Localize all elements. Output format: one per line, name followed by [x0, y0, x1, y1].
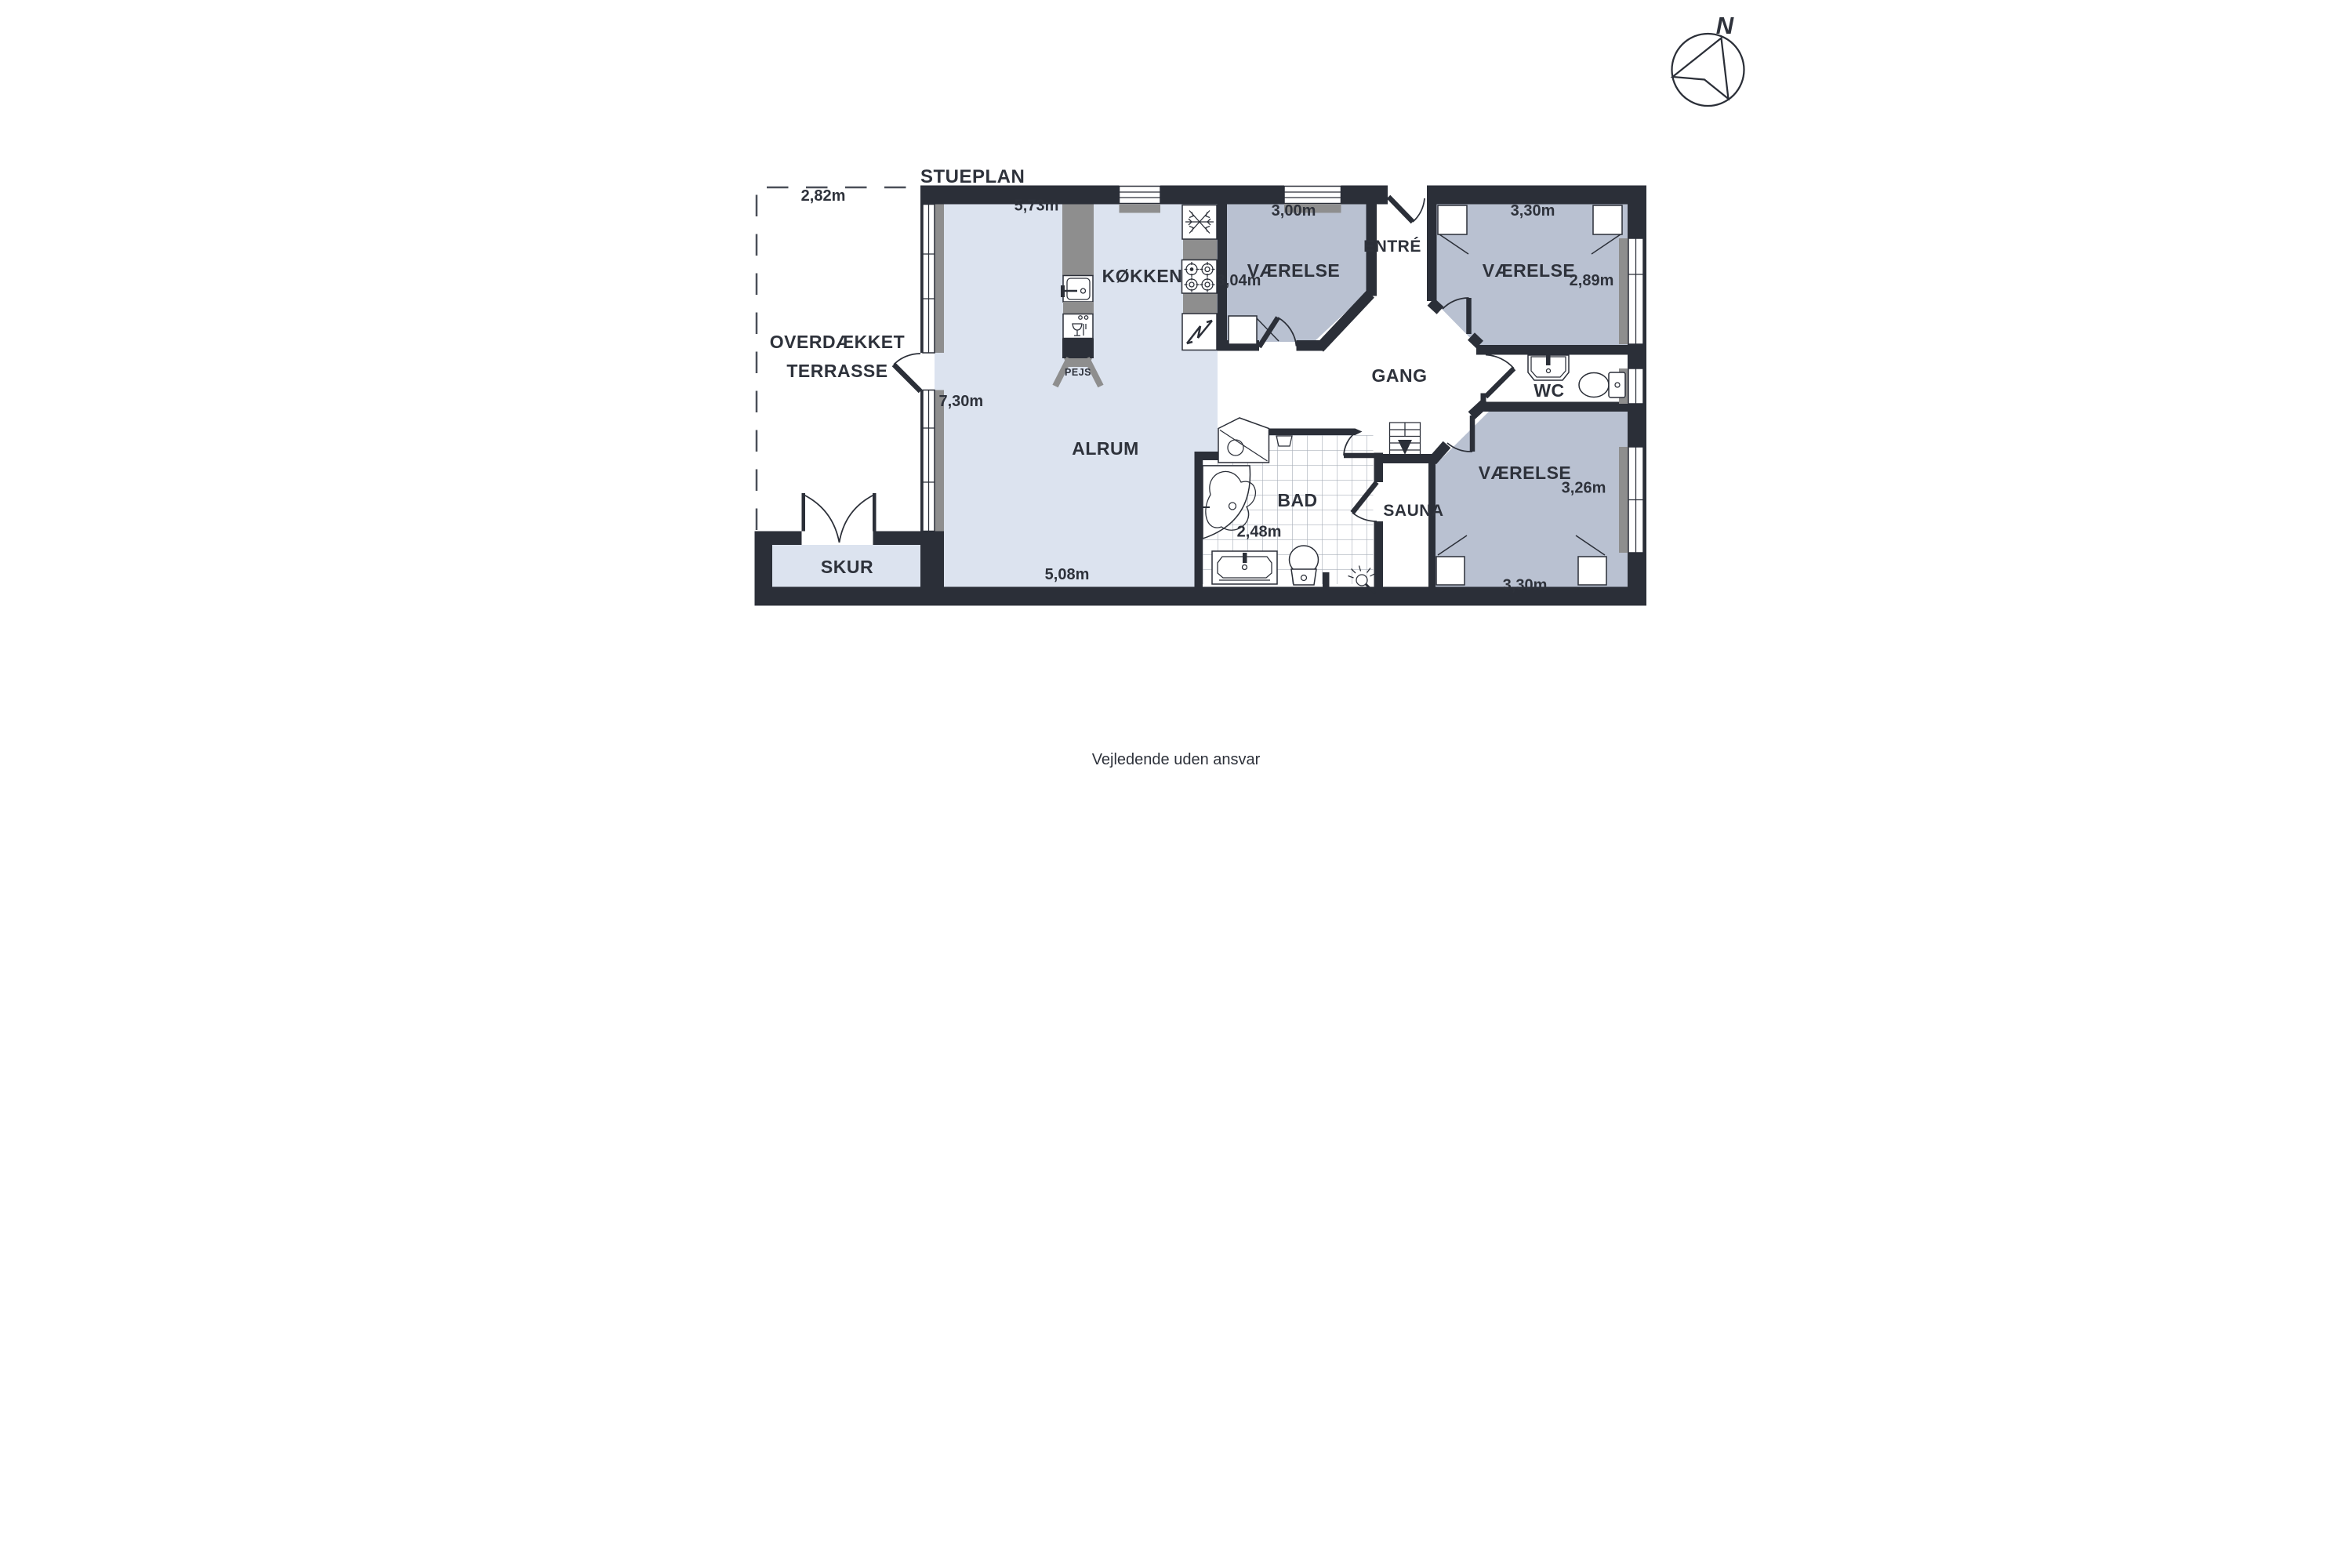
- dim-bad-width: 2,48m: [1237, 524, 1282, 541]
- door-wc: [1486, 355, 1514, 397]
- dim-bedroom-se-width: 3,30m: [1503, 577, 1548, 594]
- wardrobe-ne-left: [1438, 205, 1467, 234]
- room-label-shed: SKUR: [821, 557, 873, 577]
- door-shed-double: [804, 495, 874, 543]
- wardrobe-mid: [1229, 316, 1257, 344]
- floor-plan: PEJS: [588, 0, 1764, 784]
- toilet-bad: [1290, 546, 1319, 585]
- wardrobe-ne-right: [1593, 205, 1622, 234]
- footer-disclaimer: Vejledende uden ansvar: [1092, 751, 1261, 768]
- terrace-boundary: [757, 187, 920, 530]
- faucet-icon: [1061, 285, 1065, 297]
- fireplace-body: [1062, 339, 1094, 359]
- window-top-bedroom-mid: [1284, 187, 1341, 204]
- dim-bedroom-se-depth: 3,26m: [1562, 480, 1606, 497]
- vanity-sink: [1212, 551, 1277, 584]
- room-label-bedroom-se: VÆRELSE: [1479, 463, 1572, 483]
- dim-bedroom-ne-depth: 2,89m: [1570, 272, 1614, 289]
- floor-plan-page: PEJS: [588, 0, 1764, 784]
- room-label-hallway: GANG: [1372, 365, 1428, 386]
- plan-title: STUEPLAN: [920, 166, 1025, 187]
- shower-cabin: [1218, 418, 1269, 463]
- room-label-bedroom-mid: VÆRELSE: [1247, 260, 1341, 281]
- hand-basin: [1528, 355, 1569, 380]
- stairs-down: [1390, 423, 1421, 457]
- window-top-kitchen: [1120, 187, 1161, 204]
- compass-north-label: N: [1716, 12, 1734, 39]
- dim-alrum-bottom: 5,08m: [1045, 566, 1090, 583]
- toilet-wc: [1579, 372, 1625, 397]
- room-label-wc: WC: [1534, 380, 1564, 401]
- room-label-entry: ENTRÉ: [1363, 238, 1421, 256]
- fireplace-label: PEJS: [1065, 367, 1091, 378]
- stairs-arrow-icon: [1398, 440, 1412, 455]
- dim-bedroom-ne-width: 3,30m: [1511, 202, 1555, 220]
- door-terrace: [894, 354, 920, 391]
- room-label-terrace-1: OVERDÆKKET: [770, 332, 905, 352]
- dim-alrum-top: 5,73m: [1014, 198, 1059, 215]
- door-front-entry: [1388, 197, 1425, 222]
- wardrobe-se-right: [1578, 557, 1606, 585]
- dim-bedroom-mid-depth: 3,04m: [1217, 272, 1261, 289]
- dim-bedroom-mid-width: 3,00m: [1272, 202, 1316, 220]
- room-label-terrace-2: TERRASSE: [786, 361, 887, 381]
- room-label-bad: BAD: [1277, 490, 1317, 510]
- compass-icon: [1672, 34, 1744, 106]
- room-label-alrum: ALRUM: [1072, 438, 1139, 459]
- dim-alrum-left: 7,30m: [939, 393, 984, 410]
- room-label-kitchen: KØKKEN: [1102, 266, 1183, 286]
- dim-terrace-width: 2,82m: [801, 187, 846, 205]
- room-label-sauna: SAUNA: [1383, 502, 1443, 520]
- room-label-bedroom-ne: VÆRELSE: [1483, 260, 1576, 281]
- wardrobe-se-left: [1436, 557, 1465, 585]
